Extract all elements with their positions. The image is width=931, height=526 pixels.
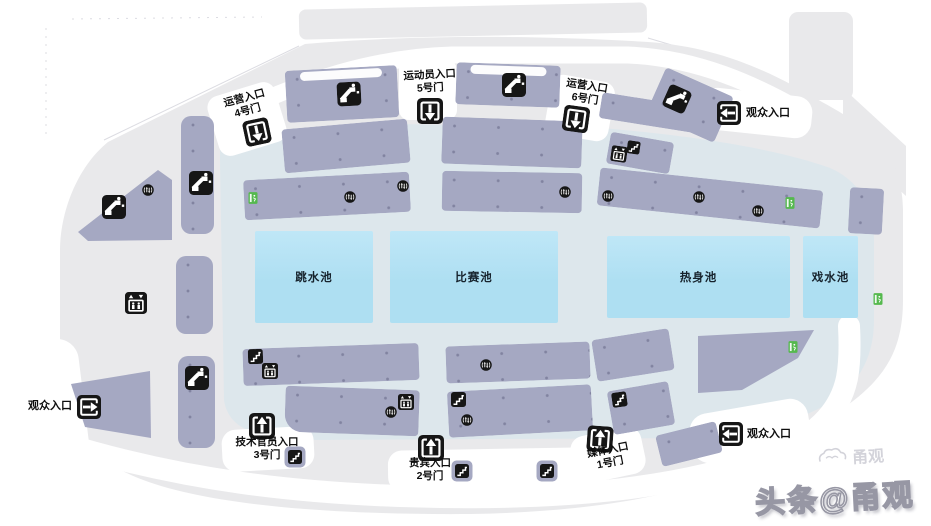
stairs-icon: [248, 349, 264, 365]
stairs-icon: [611, 391, 628, 408]
elevator-icon: [125, 292, 147, 314]
stairs-icon: [626, 140, 641, 155]
spectator-bottom-entrance-arrow-icon: [719, 422, 743, 446]
lift-icon: [461, 414, 473, 426]
lift-icon: [752, 205, 764, 217]
lift-icon: [559, 186, 571, 198]
escalator-icon: [661, 83, 693, 115]
exit-sign-icon: [249, 192, 258, 204]
lift-icon: [385, 406, 397, 418]
lift-icon: [693, 191, 705, 203]
escalator-icon: [189, 171, 213, 195]
watermark-logo-cloud: [815, 444, 850, 470]
lift-icon: [397, 180, 409, 192]
elevator-icon: [610, 145, 628, 163]
lift-icon: [602, 190, 614, 202]
gate3-label: 技术官员入口 3号门: [226, 436, 308, 461]
swimming-venue-floorplan: 跳水池 比赛池 热身池 戏水池: [0, 0, 931, 526]
exit-sign-icon: [786, 197, 795, 209]
stairs-icon: [540, 464, 554, 478]
spectator-left-entrance-arrow-icon: [77, 395, 101, 419]
watermark-logo-text: 甬观: [851, 442, 884, 468]
escalator-icon: [502, 73, 526, 97]
exit-sign-icon: [789, 341, 798, 353]
lift-icon: [344, 191, 356, 203]
watermark-logo: 甬观: [815, 442, 884, 470]
gate6-entrance-arrow-icon: [561, 104, 590, 133]
gate5-entrance-arrow-icon: [417, 98, 443, 124]
spectator-top-label: 观众入口: [746, 107, 790, 120]
lift-icon: [142, 184, 154, 196]
spectator-top-entrance-arrow-icon: [717, 101, 741, 125]
gate2-label: 贵宾入口 2号门: [400, 457, 460, 482]
stairs-icon: [451, 392, 466, 407]
elevator-icon: [398, 394, 414, 410]
elevator-icon: [262, 363, 278, 379]
escalator-icon: [185, 366, 209, 390]
spectator-bottom-label: 观众入口: [747, 428, 791, 441]
watermark-text: 头条@甬观: [754, 470, 915, 522]
escalator-icon: [102, 195, 126, 219]
gate5-label: 运动员入口 5号门: [393, 67, 466, 96]
escalator-icon: [336, 81, 361, 106]
exit-sign-icon: [874, 293, 883, 305]
lift-icon: [480, 359, 492, 371]
spectator-left-label: 观众入口: [28, 400, 72, 413]
gate4-entrance-arrow-icon: [242, 117, 273, 148]
